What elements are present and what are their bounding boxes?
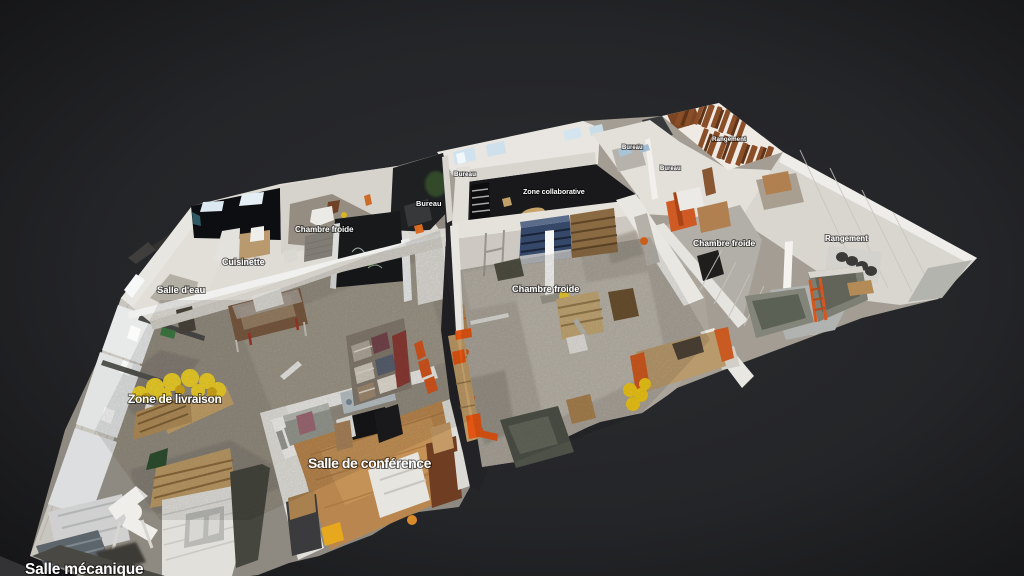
svg-text:Chambre froide: Chambre froide [693, 238, 755, 248]
svg-text:Zone de livraison: Zone de livraison [128, 392, 222, 406]
svg-text:Salle d'eau: Salle d'eau [157, 285, 205, 296]
svg-text:Bureau: Bureau [660, 166, 681, 172]
svg-text:Salle mécanique: Salle mécanique [25, 561, 144, 576]
svg-text:Chambre froide: Chambre froide [295, 225, 354, 234]
svg-text:Bureau: Bureau [416, 199, 442, 208]
svg-text:Bureau: Bureau [622, 145, 643, 151]
svg-text:Rangement: Rangement [712, 136, 747, 143]
svg-text:Chambre froide: Chambre froide [512, 284, 579, 294]
svg-text:Cuisinette: Cuisinette [222, 257, 265, 267]
svg-text:Salle de conférence: Salle de conférence [308, 455, 432, 471]
svg-text:Rangement: Rangement [825, 234, 868, 243]
svg-text:Bureau: Bureau [454, 171, 476, 178]
svg-text:Zone collaborative: Zone collaborative [523, 187, 585, 196]
